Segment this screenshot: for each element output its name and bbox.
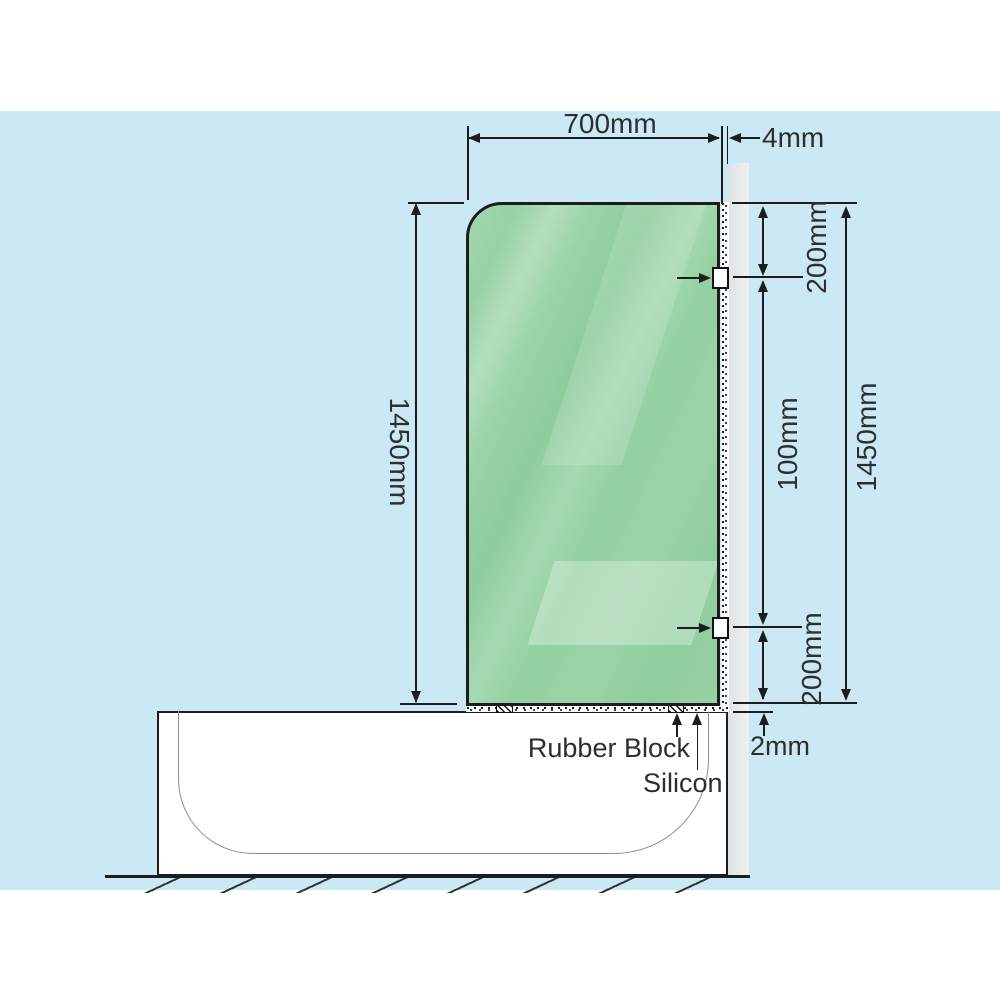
dim-left-1450-line [415, 206, 417, 702]
dim-left-1450-tick-top [408, 202, 464, 204]
ref-tick-bracket-top [733, 276, 803, 278]
dim-100-arrow-up-icon [758, 280, 768, 292]
bracket-bottom-pointer-arrow-icon [699, 623, 711, 633]
silicon-label: Silicon [643, 768, 723, 798]
dim-extension-wall-face [727, 126, 729, 164]
rubber-block-label: Rubber Block [520, 733, 690, 763]
silicon-leader-line [697, 724, 699, 770]
ref-tick-glass-top [732, 202, 857, 204]
dim-700-label: 700mm [510, 108, 710, 140]
dim-4-arrow-icon [729, 133, 741, 143]
dim-100-arrow-down-icon [758, 613, 768, 625]
dim-100-label: 100mm [772, 396, 804, 492]
dim-200top-arrow-down-icon [758, 264, 768, 276]
dim-left-1450-tick-bottom [400, 703, 457, 705]
dim-2-label: 2mm [750, 731, 810, 761]
ref-tick-glass-bottom [733, 702, 857, 705]
dim-right-1450-arrow-down-icon [841, 689, 851, 701]
ref-tick-bracket-bottom [733, 626, 802, 628]
dim-extension-glass-edge [721, 126, 723, 204]
dim-200bottom-arrow-down-icon [758, 688, 768, 700]
dim-right-1450-line [845, 209, 847, 699]
dim-200top-label: 200mm [801, 199, 833, 295]
wall-bracket-bottom [712, 617, 729, 639]
wall-bracket-top [712, 267, 729, 289]
dim-4-label: 4mm [762, 122, 824, 154]
glass-reflection-patch [527, 561, 718, 645]
dim-200top-arrow-up-icon [758, 206, 768, 218]
dim-100-line [762, 283, 764, 622]
dim-200bottom-arrow-up-icon [758, 630, 768, 642]
dim-left-1450-arrow-bottom-icon [411, 691, 421, 703]
glass-reflection-streak [542, 202, 713, 465]
dim-right-1450-label: 1450mm [851, 382, 883, 492]
floor-hatching [105, 878, 750, 893]
dim-200bottom-label: 200mm [796, 611, 828, 707]
dim-700-arrow-left-icon [468, 133, 480, 143]
dim-right-1450-arrow-up-icon [841, 206, 851, 218]
bracket-top-pointer-arrow-icon [699, 273, 711, 283]
wall [729, 163, 749, 877]
dim-left-1450-label: 1450mm [383, 397, 415, 507]
dim-left-1450-arrow-top-icon [411, 203, 421, 215]
dim-700-extension-left [467, 126, 469, 200]
